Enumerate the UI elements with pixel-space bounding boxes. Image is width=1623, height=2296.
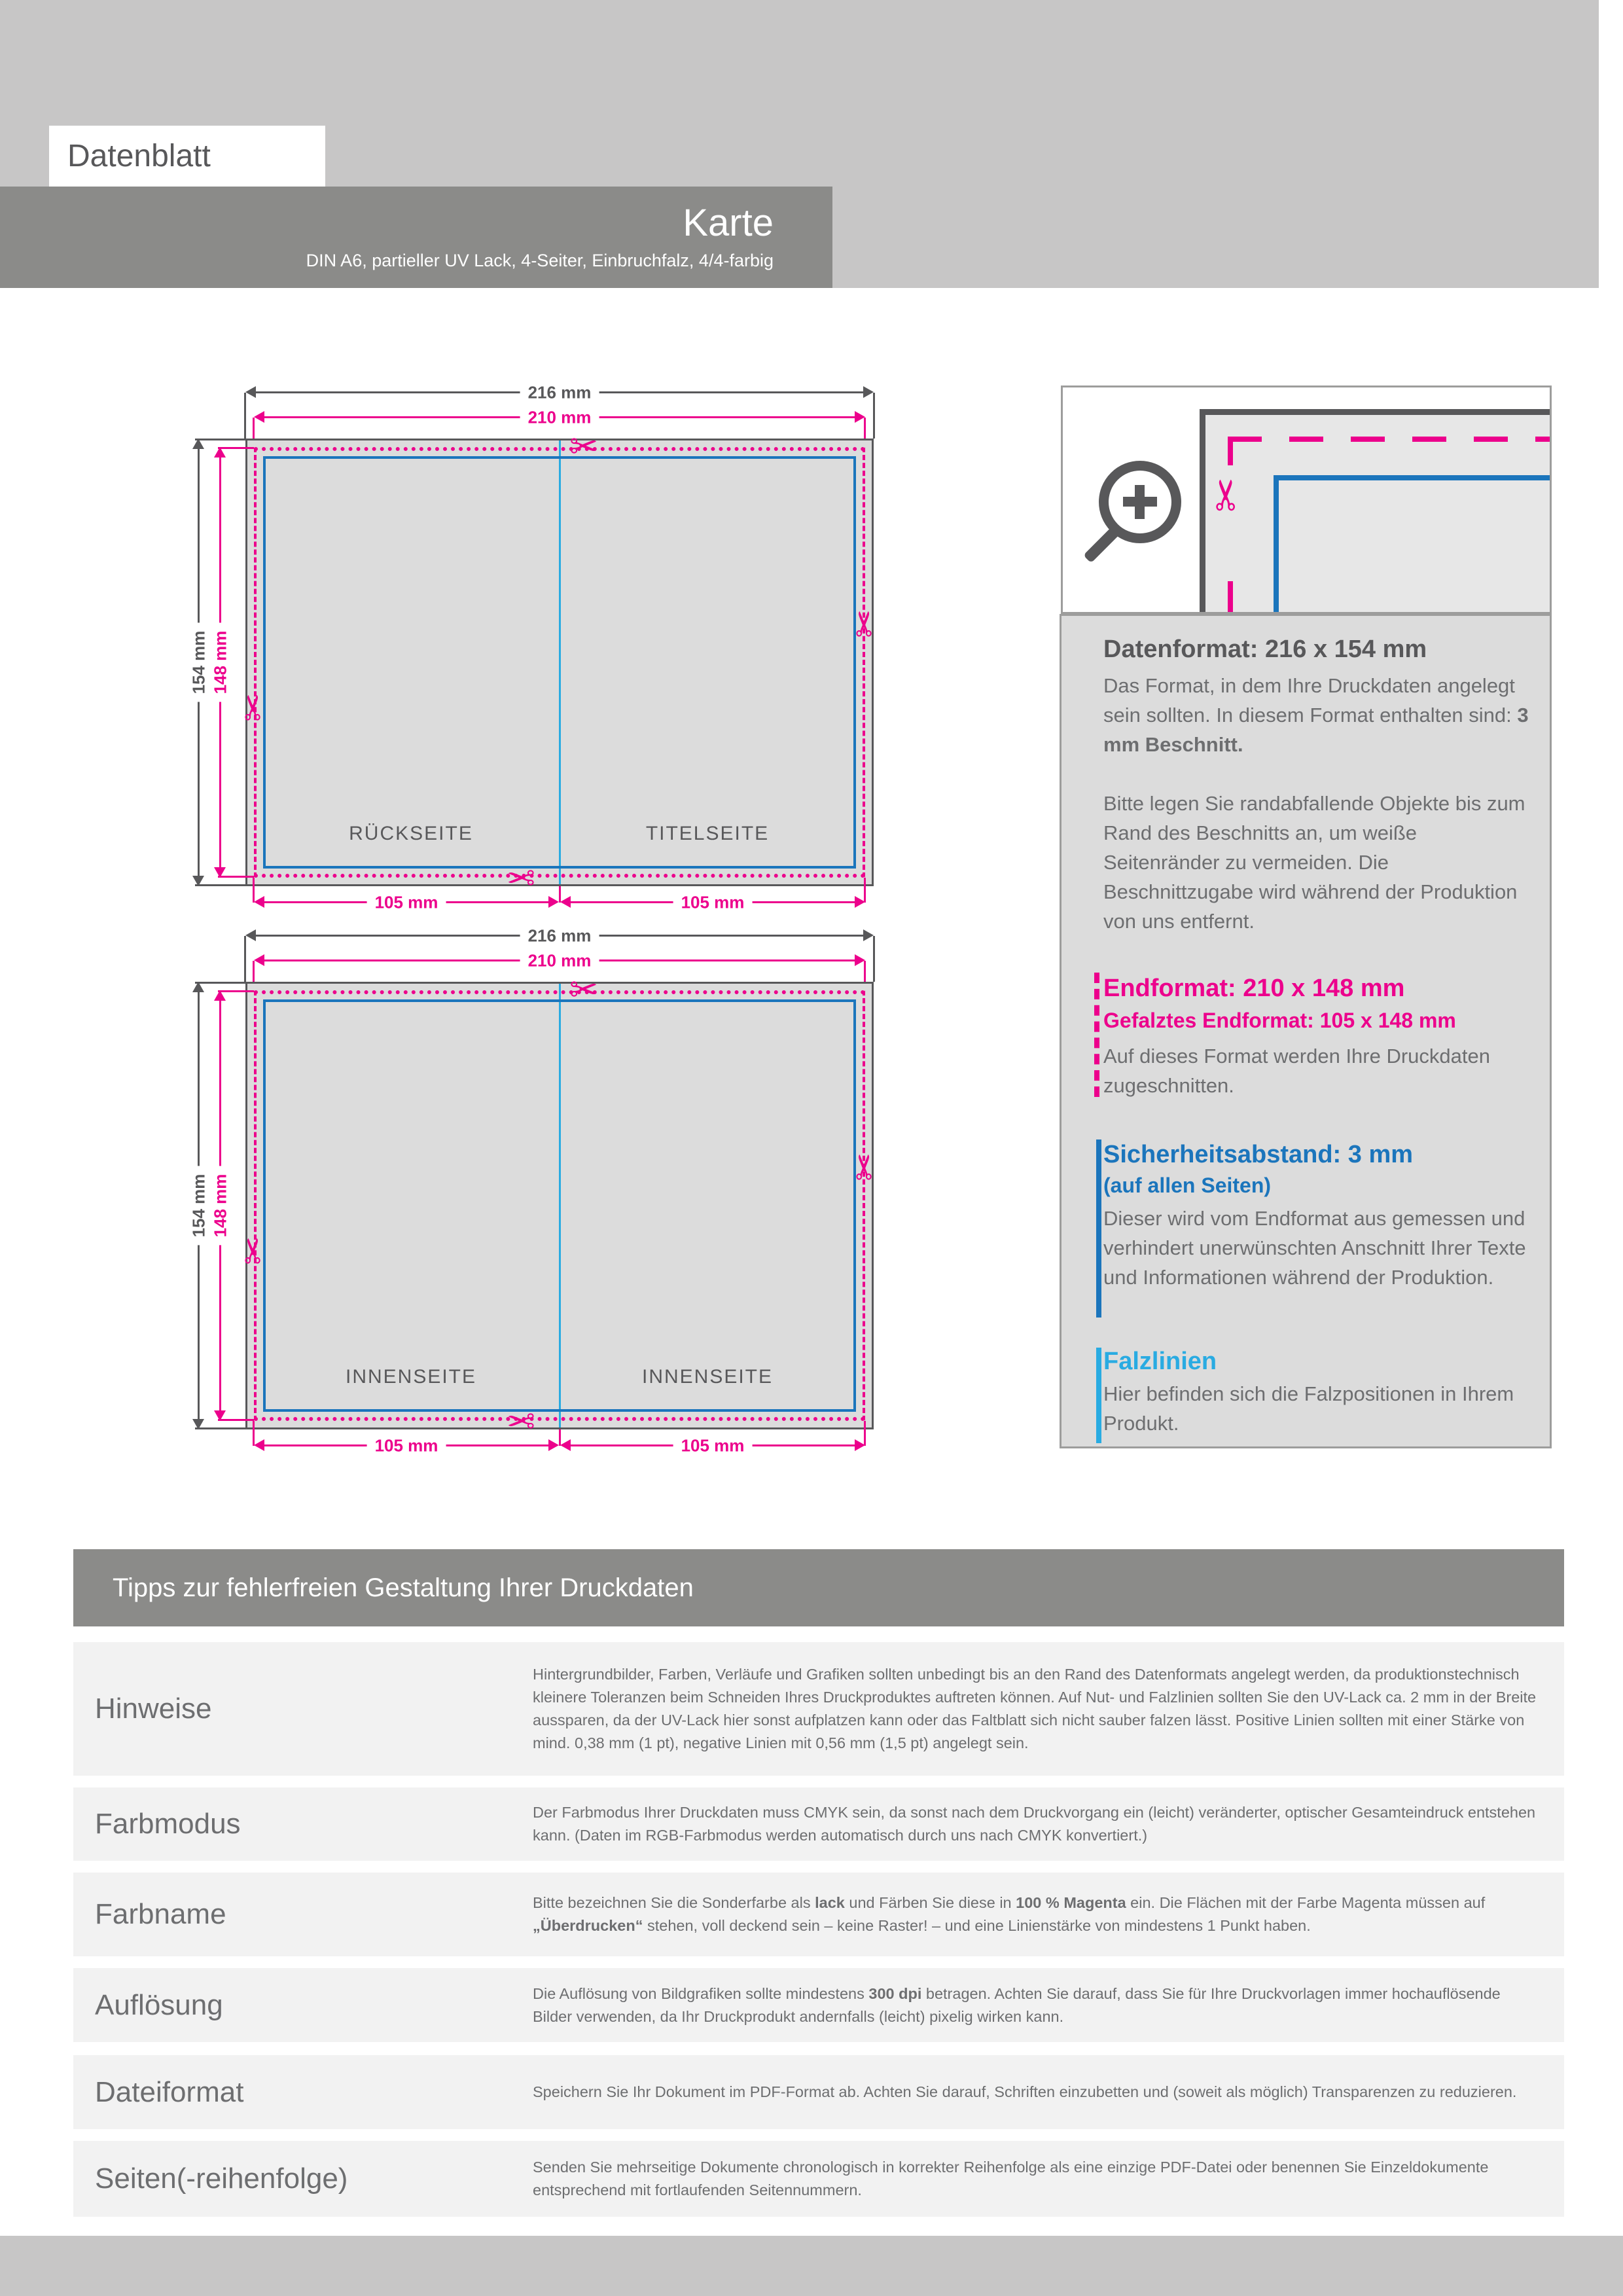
falzlinien-body: Hier befinden sich die Falzpositionen in… xyxy=(1103,1379,1535,1438)
row-label: Dateiformat xyxy=(73,2076,533,2109)
dim-height-endformat: 148 mm xyxy=(211,447,230,878)
safety-subtitle: (auf allen Seiten) xyxy=(1103,1174,1271,1198)
scissors-icon: ✂ xyxy=(236,1232,272,1269)
format-info-panel: Datenformat: 216 x 154 mm Das Format, in… xyxy=(1060,614,1552,1448)
datenformat-body-more: Bitte legen Sie randabfallende Objekte b… xyxy=(1103,789,1535,936)
dim-half-width-left: 105 mm xyxy=(254,1436,559,1456)
tips-row-aufloesung: Auflösung Die Auflösung von Bildgrafiken… xyxy=(73,1968,1564,2042)
extension-line xyxy=(873,936,875,982)
dim-width-endformat: 210 mm xyxy=(254,408,865,427)
datenformat-title: Datenformat: 216 x 154 mm xyxy=(1103,636,1427,664)
dim-label: 105 mm xyxy=(367,1436,446,1456)
scissors-icon: ✂ xyxy=(565,429,602,465)
dim-label: 105 mm xyxy=(673,1436,753,1456)
detail-trim-line xyxy=(1228,442,1233,465)
endformat-marker-line xyxy=(1094,973,1099,1097)
dim-label: 210 mm xyxy=(520,408,599,428)
dim-height-datenformat: 154 mm xyxy=(189,439,209,886)
safety-box xyxy=(263,456,856,869)
row-label: Seiten(-reihenfolge) xyxy=(73,2162,533,2195)
scissors-icon: ✂ xyxy=(847,605,883,642)
page-label-inner-right: INNENSEITE xyxy=(559,1366,856,1388)
dim-label: 210 mm xyxy=(520,951,599,971)
endformat-body: Auf dieses Format werden Ihre Druckdaten… xyxy=(1103,1041,1535,1100)
row-text: Hintergrundbilder, Farben, Verläufe und … xyxy=(533,1663,1537,1755)
dim-label: 216 mm xyxy=(520,383,599,403)
row-text: Die Auflösung von Bildgrafiken sollte mi… xyxy=(533,1982,1537,2028)
tips-row-farbmodus: Farbmodus Der Farbmodus Ihrer Druckdaten… xyxy=(73,1787,1564,1861)
row-label: Farbmodus xyxy=(73,1808,533,1840)
endformat-title: Endformat: 210 x 148 mm xyxy=(1103,975,1404,1003)
tips-row-farbname: Farbname Bitte bezeichnen Sie die Sonder… xyxy=(73,1873,1564,1956)
dim-height-datenformat: 154 mm xyxy=(189,982,209,1429)
detail-trim-line xyxy=(1228,581,1233,612)
scissors-icon: ✂ xyxy=(503,1401,539,1438)
tips-row-hinweise: Hinweise Hintergrundbilder, Farben, Verl… xyxy=(73,1642,1564,1776)
scissors-icon: ✂ xyxy=(847,1149,883,1185)
dim-half-width-right: 105 mm xyxy=(560,1436,865,1456)
tips-header-band: Tipps zur fehlerfreien Gestaltung Ihrer … xyxy=(73,1549,1564,1626)
dim-half-width-right: 105 mm xyxy=(560,893,865,912)
row-text: Bitte bezeichnen Sie die Sonderfarbe als… xyxy=(533,1892,1537,1937)
detail-safety-line xyxy=(1274,475,1279,612)
safety-body: Dieser wird vom Endformat aus gemessen u… xyxy=(1103,1204,1535,1292)
datenformat-body: Das Format, in dem Ihre Druckdaten angel… xyxy=(1103,671,1535,759)
zoom-plus-icon xyxy=(1083,525,1122,564)
dim-label: 105 mm xyxy=(673,893,753,913)
row-label: Hinweise xyxy=(73,1693,533,1725)
zoom-plus-icon xyxy=(1135,485,1145,519)
safety-marker-line xyxy=(1096,1139,1101,1318)
zoom-detail-box: ✂ xyxy=(1061,386,1552,614)
detail-safety-line xyxy=(1274,475,1550,480)
tips-row-seitenreihenfolge: Seiten(-reihenfolge) Senden Sie mehrseit… xyxy=(73,2141,1564,2217)
detail-bleed-area xyxy=(1205,415,1550,612)
dim-label: 154 mm xyxy=(189,1166,209,1246)
falzlinien-title: Falzlinien xyxy=(1103,1348,1217,1376)
scissors-icon: ✂ xyxy=(236,689,272,726)
page-label-back: RÜCKSEITE xyxy=(263,823,559,845)
dim-label: 105 mm xyxy=(367,893,446,913)
product-subtitle: DIN A6, partieller UV Lack, 4-Seiter, Ei… xyxy=(306,251,774,271)
scissors-icon: ✂ xyxy=(1208,476,1245,513)
dim-width-datenformat: 216 mm xyxy=(245,926,874,946)
detail-trim-line xyxy=(1228,437,1550,442)
detail-datenformat-edge xyxy=(1200,409,1550,415)
row-label: Farbname xyxy=(73,1898,533,1931)
sheet-title-box: Datenblatt xyxy=(49,126,325,187)
sheet-title: Datenblatt xyxy=(67,138,211,174)
falzlinien-marker-line xyxy=(1096,1348,1101,1443)
scissors-icon: ✂ xyxy=(565,972,602,1009)
datasheet-page: Datenblatt Karte DIN A6, partieller UV L… xyxy=(0,0,1623,2296)
endformat-subtitle: Gefalztes Endformat: 105 x 148 mm xyxy=(1103,1009,1456,1033)
row-label: Auflösung xyxy=(73,1989,533,2022)
page-label-front: TITELSEITE xyxy=(559,823,856,845)
safety-box xyxy=(263,999,856,1412)
extension-line xyxy=(873,393,875,439)
dim-half-width-left: 105 mm xyxy=(254,893,559,912)
dim-label: 154 mm xyxy=(189,623,209,702)
dim-width-datenformat: 216 mm xyxy=(245,383,874,403)
dim-label: 216 mm xyxy=(520,926,599,946)
row-text: Speichern Sie Ihr Dokument im PDF-Format… xyxy=(533,2081,1537,2104)
footer-band xyxy=(0,2236,1623,2296)
dim-height-endformat: 148 mm xyxy=(211,990,230,1421)
product-title: Karte xyxy=(683,204,774,243)
dim-width-endformat: 210 mm xyxy=(254,951,865,971)
dim-label: 148 mm xyxy=(211,1166,231,1246)
extension-line xyxy=(244,393,246,439)
page-label-inner-left: INNENSEITE xyxy=(263,1366,559,1388)
tips-row-dateiformat: Dateiformat Speichern Sie Ihr Dokument i… xyxy=(73,2055,1564,2129)
product-header-band: Karte DIN A6, partieller UV Lack, 4-Seit… xyxy=(0,187,832,288)
dim-label: 148 mm xyxy=(211,623,231,702)
row-text: Senden Sie mehrseitige Dokumente chronol… xyxy=(533,2156,1537,2202)
safety-title: Sicherheitsabstand: 3 mm xyxy=(1103,1141,1413,1169)
datenformat-body-intro: Das Format, in dem Ihre Druckdaten angel… xyxy=(1103,674,1517,726)
extension-line xyxy=(244,936,246,982)
row-text: Der Farbmodus Ihrer Druckdaten muss CMYK… xyxy=(533,1801,1537,1847)
scissors-icon: ✂ xyxy=(503,858,539,895)
tips-title: Tipps zur fehlerfreien Gestaltung Ihrer … xyxy=(113,1573,694,1603)
